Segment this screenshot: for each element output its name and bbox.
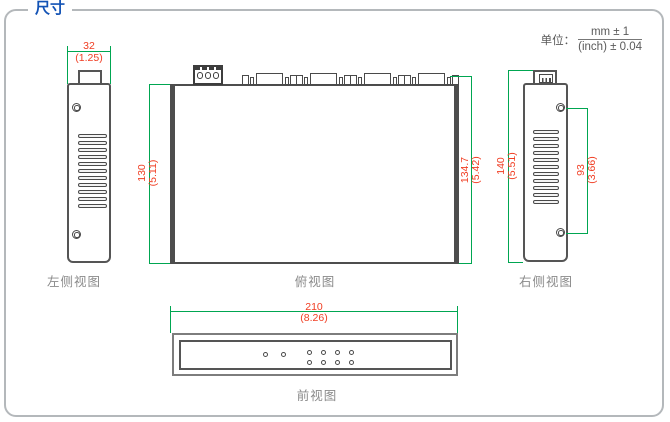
vga-pin bbox=[412, 77, 416, 85]
vent-slot bbox=[533, 200, 559, 204]
vent-slot bbox=[533, 172, 559, 176]
dimension-tick bbox=[459, 263, 472, 264]
led-indicator bbox=[335, 360, 340, 365]
dimension-extension-line bbox=[457, 306, 458, 333]
vent-slot bbox=[78, 134, 107, 138]
vent-slot bbox=[78, 155, 107, 159]
vent-slot bbox=[78, 204, 107, 208]
vent-slots bbox=[533, 130, 559, 207]
vent-slot bbox=[78, 183, 107, 187]
terminal-hole bbox=[197, 72, 204, 79]
vga-pin bbox=[304, 77, 308, 85]
dimension-tick bbox=[566, 108, 588, 109]
terminal-hole bbox=[205, 72, 212, 79]
dimension-tick bbox=[149, 263, 170, 264]
dim-top-depth-inch: (5.11) bbox=[148, 113, 159, 233]
unit-fraction: mm ± 1 (inch) ± 0.04 bbox=[578, 26, 642, 53]
vga-screw-post bbox=[242, 75, 249, 85]
dim-left-width-mm: 32 bbox=[67, 41, 111, 51]
vent-slot bbox=[533, 186, 559, 190]
dimension-tick bbox=[566, 233, 588, 234]
unit-mm-tolerance: mm ± 1 bbox=[578, 26, 642, 40]
terminal-hole bbox=[213, 72, 220, 79]
dim-right-screw-span: 93 (3.66) bbox=[576, 110, 598, 230]
front-panel-inset bbox=[179, 340, 452, 370]
vent-slot bbox=[78, 141, 107, 145]
vent-slots bbox=[78, 134, 107, 211]
vga-shell bbox=[256, 73, 283, 85]
vga-pin bbox=[393, 77, 397, 85]
dim-top-depth-connectors-inch: (5.42) bbox=[471, 110, 482, 230]
led-indicator bbox=[349, 350, 354, 355]
vga-pin bbox=[358, 77, 362, 85]
led-indicator bbox=[281, 352, 286, 357]
vga-connector bbox=[296, 72, 351, 85]
top-view-label: 俯视图 bbox=[270, 271, 360, 290]
led-indicator bbox=[307, 350, 312, 355]
vga-pin bbox=[285, 77, 289, 85]
led-indicator bbox=[321, 360, 326, 365]
vga-screw-post bbox=[404, 75, 411, 85]
vent-slot bbox=[533, 165, 559, 169]
dim-top-depth-with-connectors: 134.7 (5.42) bbox=[460, 110, 482, 230]
led-indicator bbox=[349, 360, 354, 365]
vga-shell bbox=[310, 73, 337, 85]
vent-slot bbox=[533, 137, 559, 141]
vga-screw-post bbox=[350, 75, 357, 85]
vent-slot bbox=[533, 151, 559, 155]
unit-inch-tolerance: (inch) ± 0.04 bbox=[578, 40, 642, 53]
vent-slot bbox=[533, 158, 559, 162]
led-indicator bbox=[307, 360, 312, 365]
vga-connector bbox=[404, 72, 459, 85]
led-indicator bbox=[321, 350, 326, 355]
dimension-tick bbox=[508, 70, 533, 71]
dimension-extension-line bbox=[110, 46, 111, 84]
vga-shell bbox=[364, 73, 391, 85]
vent-slot bbox=[78, 197, 107, 201]
dim-top-depth: 130 (5.11) bbox=[137, 113, 159, 233]
right-view-label: 右侧视图 bbox=[501, 271, 591, 290]
left-view-label: 左侧视图 bbox=[29, 271, 119, 290]
dimension-extension-line bbox=[170, 306, 171, 333]
dim-right-screw-span-inch: (3.66) bbox=[587, 110, 598, 230]
screw-hole bbox=[556, 103, 565, 112]
dimension-tick bbox=[149, 84, 170, 85]
dimension-tick bbox=[450, 76, 472, 77]
vent-slot bbox=[533, 193, 559, 197]
dimension-extension-line bbox=[67, 46, 68, 84]
dimensions-diagram-page: 尺寸 单位： mm ± 1 (inch) ± 0.04 32 (1.25) 左侧… bbox=[0, 0, 670, 422]
vent-slot bbox=[533, 130, 559, 134]
dim-front-width-inch: (8.26) bbox=[170, 313, 458, 323]
unit-label: 单位： bbox=[541, 32, 576, 48]
vga-shell bbox=[418, 73, 445, 85]
vga-pin bbox=[447, 77, 451, 85]
vent-slot bbox=[533, 144, 559, 148]
unit-annotation: 单位： mm ± 1 (inch) ± 0.04 bbox=[541, 26, 642, 53]
vga-connector bbox=[242, 72, 297, 85]
page-title: 尺寸 bbox=[28, 0, 72, 18]
vga-pin bbox=[339, 77, 343, 85]
screw-hole bbox=[72, 103, 81, 112]
vent-slot bbox=[533, 179, 559, 183]
vga-connector bbox=[350, 72, 405, 85]
terminal-side-profile bbox=[539, 74, 553, 83]
led-indicator bbox=[335, 350, 340, 355]
screw-hole bbox=[556, 228, 565, 237]
dim-right-height-inch: (5.51) bbox=[507, 106, 518, 226]
dim-right-height: 140 (5.51) bbox=[496, 106, 518, 226]
left-view-top-tab bbox=[78, 70, 102, 84]
vent-slot bbox=[78, 176, 107, 180]
terminal-block-connector bbox=[193, 65, 223, 85]
dimension-tick bbox=[508, 262, 523, 263]
terminal-screw-band bbox=[195, 67, 221, 70]
vga-pin bbox=[250, 77, 254, 85]
led-indicator bbox=[263, 352, 268, 357]
top-view-outline bbox=[170, 84, 459, 264]
screw-hole bbox=[72, 230, 81, 239]
vent-slot bbox=[78, 148, 107, 152]
vent-slot bbox=[78, 162, 107, 166]
vent-slot bbox=[78, 190, 107, 194]
terminal-holes bbox=[195, 72, 221, 79]
vent-slot bbox=[78, 169, 107, 173]
front-view-label: 前视图 bbox=[272, 385, 362, 404]
vga-screw-post bbox=[296, 75, 303, 85]
